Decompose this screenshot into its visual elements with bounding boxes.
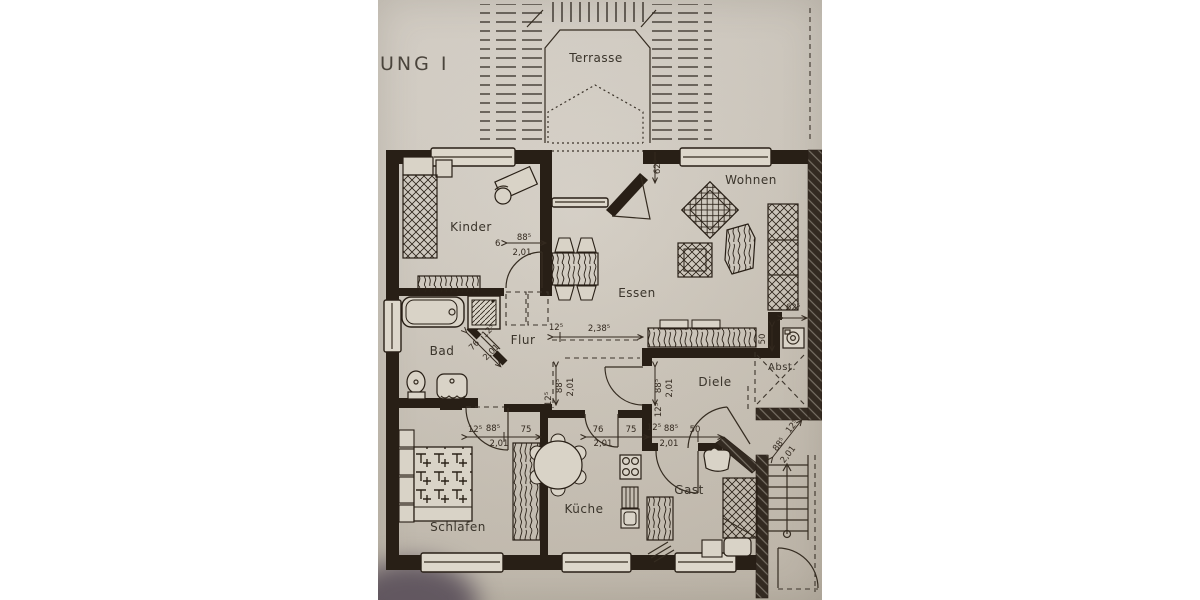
wohnen-armchair <box>725 224 755 274</box>
dining-set <box>552 238 598 300</box>
toilet <box>407 371 425 399</box>
dim-kinder-prefix: 6. <box>495 239 503 249</box>
room-label-bad: Bad <box>430 344 455 358</box>
dim-schlafen-left: 12⁵ <box>468 425 482 435</box>
dim-bay-width: 62⁵ <box>653 160 663 174</box>
shower <box>468 296 500 329</box>
window-bad <box>384 300 401 352</box>
dim-kueche-right: 75 <box>626 425 637 435</box>
door-stairwell <box>778 548 818 589</box>
kueche-sink <box>621 509 639 528</box>
dim-diele-width: 88⁵ <box>654 379 664 393</box>
dim-gast-right: 50 <box>690 425 701 435</box>
gast-table <box>702 540 722 557</box>
plan-title: UNG I <box>380 53 450 75</box>
wohnen-side-table <box>678 243 712 277</box>
terrace-pergola <box>480 0 810 151</box>
dim-kinder-height: 2,01 <box>513 248 532 258</box>
stairs <box>768 455 808 540</box>
room-label-terrasse: Terrasse <box>568 51 623 65</box>
kinder-wardrobe <box>418 276 480 293</box>
room-label-flur: Flur <box>511 333 536 347</box>
dim-diele-left: 12⁵ <box>654 403 664 417</box>
room-label-kueche: Küche <box>565 502 604 516</box>
dim-flur-width: 88⁵ <box>555 379 565 393</box>
window-kueche <box>562 553 631 572</box>
dim-essen-gap-left: 12⁵ <box>549 323 563 333</box>
dim-entry-left: 12⁵ <box>784 418 801 435</box>
dim-kueche-width: 76 <box>593 425 604 435</box>
room-label-wohnen: Wohnen <box>725 173 777 187</box>
kueche-counter <box>622 487 638 508</box>
gast-armchair <box>704 448 730 471</box>
dim-gast-width: 88⁵ <box>664 424 678 434</box>
room-label-gast: Gast <box>674 483 704 497</box>
room-label-essen: Essen <box>618 286 656 300</box>
dim-schlafen-right: 75 <box>521 425 532 435</box>
dim-flur-height: 2,01 <box>566 378 576 397</box>
gast-wardrobe <box>647 497 673 540</box>
kinder-bed <box>403 157 452 258</box>
stove <box>620 455 641 479</box>
room-label-schlafen: Schlafen <box>430 520 486 534</box>
dim-bad-width: 76 <box>467 338 482 353</box>
room-label-diele: Diele <box>698 375 731 389</box>
bathtub <box>402 297 464 327</box>
window-wohnen <box>680 148 771 166</box>
door-diele <box>605 367 643 405</box>
dimension-texts: 6. 88⁵ 2,01 62⁵ 12⁵ 2,38⁵ 76 12⁵ 2,01 12… <box>467 160 801 465</box>
dim-diele-height: 2,01 <box>665 379 675 398</box>
room-label-kinder: Kinder <box>450 220 492 234</box>
sink <box>437 374 467 399</box>
dim-wm-depth: 50 <box>758 334 768 345</box>
schlafen-bed <box>399 430 472 522</box>
dim-kinder-width: 88⁵ <box>517 233 531 243</box>
window-bay-sill <box>552 198 608 207</box>
dim-gast-height: 2,01 <box>660 439 679 449</box>
dim-schlafen-height: 2,01 <box>490 439 509 449</box>
sofa <box>768 204 798 310</box>
dim-schlafen-width: 88⁵ <box>486 424 500 434</box>
sideboard <box>648 320 756 347</box>
floorplan-svg: UNG I Terrasse <box>378 0 822 600</box>
dim-wm-width: 62⁵ <box>786 303 800 313</box>
washing-machine <box>783 328 804 348</box>
room-label-abst: Abst. <box>768 362 796 373</box>
screenshot: UNG I Terrasse <box>0 0 1200 600</box>
dim-essen-gap: 2,38⁵ <box>588 324 610 334</box>
dim-gast-left: 12⁵ <box>647 423 661 433</box>
window-schlafen <box>421 553 503 572</box>
gast-bed <box>723 478 757 556</box>
dim-flur-left: 12⁵ <box>544 392 554 406</box>
dim-kueche-height: 2,01 <box>594 439 613 449</box>
